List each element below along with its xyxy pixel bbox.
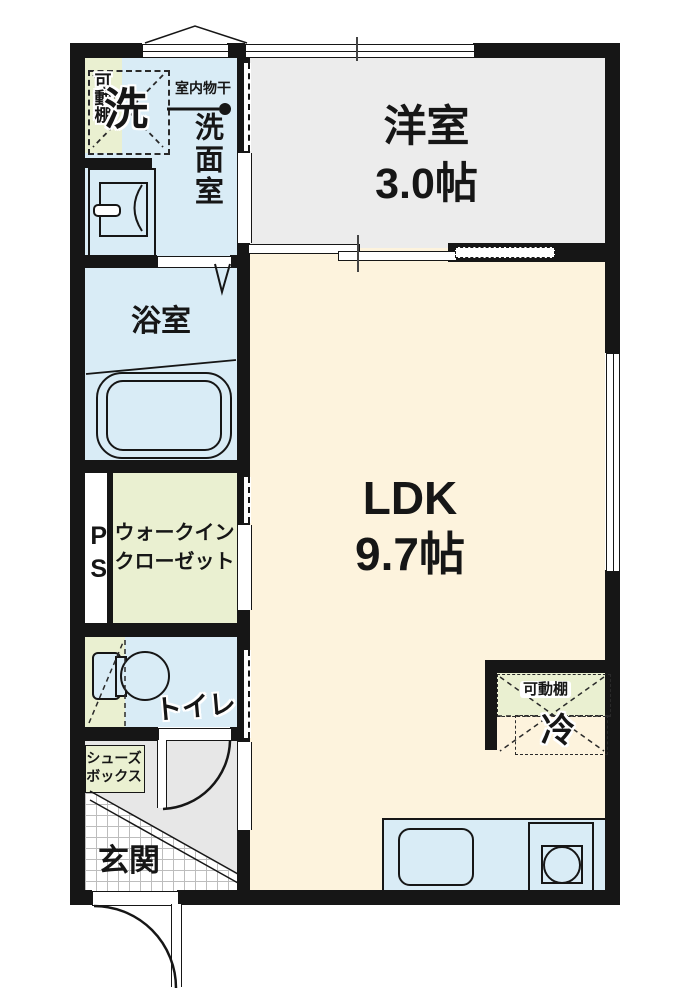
wall-bathroom-ldk: [237, 243, 250, 473]
toilet-door-leaf: [157, 740, 167, 808]
wall-left: [70, 43, 85, 905]
ldk-window: [606, 353, 620, 572]
label-refrigerator: 冷: [541, 712, 575, 751]
wall-hall-ldk-bottom: [237, 830, 250, 890]
toilet-door-opening: [158, 728, 232, 741]
wall-wic-toilet: [85, 623, 237, 637]
wall-fridge-nook-left: [485, 660, 497, 750]
wall-bottom-1: [70, 890, 92, 905]
floor-plan: 可動棚 洗 室内物干 洗面室 洋室 3.0帖 浴室 PS ウォークイン クローゼ…: [0, 0, 700, 1000]
wall-bottom-2: [177, 890, 620, 905]
vanity-handle: [93, 204, 121, 217]
label-bathroom: 浴室: [85, 305, 237, 340]
wall-right-1: [605, 43, 620, 353]
entrance-door-arc: [94, 906, 176, 988]
label-washroom: 洗面室: [189, 112, 222, 254]
label-wic-line1: ウォークイン: [112, 522, 237, 545]
western-room-window: [245, 44, 475, 58]
sliding-door-pocket: [455, 247, 555, 258]
wall-fridge-nook-top: [485, 660, 613, 673]
wall-toilet-hall-1: [85, 727, 158, 741]
wall-washer-vanity: [85, 158, 152, 168]
wall-top-3: [473, 43, 620, 58]
label-western-room: 洋室: [248, 103, 605, 152]
walk-in-closet-floor: [112, 473, 237, 623]
wall-top-2: [227, 43, 245, 58]
stove-burner-icon: [543, 846, 581, 884]
label-ldk: LDK: [250, 472, 570, 525]
label-washing-machine: 洗: [104, 85, 148, 136]
bathtub-inner: [106, 380, 222, 451]
label-wic-line2: クローゼット: [112, 551, 237, 574]
label-shoe-box-line1: シューズ: [86, 750, 142, 766]
label-indoor-drying: 室内物干: [175, 80, 231, 96]
washroom-window: [142, 44, 229, 58]
washroom-bath-door: [157, 256, 232, 268]
roof-vent-triangle: [145, 26, 247, 43]
label-entrance: 玄関: [98, 843, 160, 879]
entrance-door-leaf: [171, 904, 182, 987]
wall-bath-wic: [85, 460, 237, 473]
label-shoe-box-line2: ボックス: [86, 768, 142, 784]
western-room-floor: [248, 58, 605, 248]
label-movable-shelf-kitchen: 可動棚: [520, 681, 571, 698]
label-ldk-size: 9.7帖: [250, 528, 570, 581]
kitchen-sink: [398, 828, 474, 886]
entrance-door-opening: [92, 891, 179, 906]
wall-dash-toilet: [244, 650, 251, 738]
sliding-door-panel-2: [338, 251, 457, 261]
label-western-room-size: 3.0帖: [248, 160, 605, 209]
toilet-bowl: [120, 651, 170, 701]
label-pipe-space: PS: [84, 522, 113, 602]
hall-ldk-door: [237, 742, 252, 830]
